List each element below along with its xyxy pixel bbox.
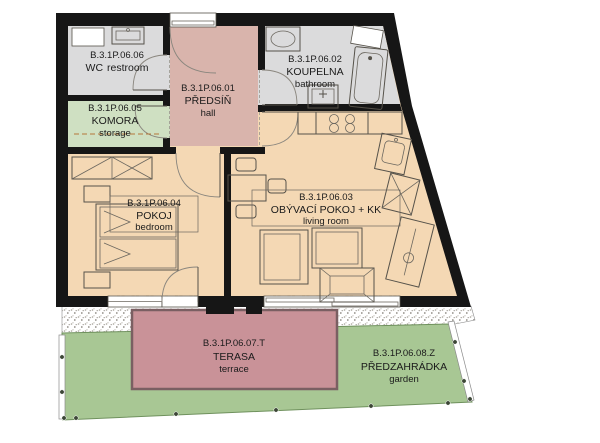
bedroom-label-en: bedroom xyxy=(135,222,173,233)
terrace xyxy=(132,310,337,389)
wc-label-name: WCrestroom xyxy=(86,62,149,74)
garden-label-en: garden xyxy=(389,374,419,385)
terrace-label-en: terrace xyxy=(219,364,249,375)
wc-label-code: B.3.1P.06.06 xyxy=(90,50,144,61)
fence-left xyxy=(59,335,65,419)
living-room-label-name: OBÝVACÍ POKOJ + KK xyxy=(271,203,381,216)
garden-label-code: B.3.1P.06.08.Z xyxy=(373,348,435,359)
hall-label-name: PŘEDSÍŇ xyxy=(185,94,232,107)
terrace-area xyxy=(132,310,337,389)
hall-label-code: B.3.1P.06.01 xyxy=(181,83,235,94)
wc-shaft-niche xyxy=(72,28,104,46)
terrace-label-code: B.3.1P.06.07.T xyxy=(203,338,265,349)
bathroom-label-code: B.3.1P.06.02 xyxy=(288,54,342,65)
living-room-label-en: living room xyxy=(303,216,349,227)
living-room-label-code: B.3.1P.06.03 xyxy=(299,192,353,203)
terrace-pier xyxy=(246,307,262,314)
bedroom-label-code: B.3.1P.06.04 xyxy=(127,198,181,209)
storage-label-name: KOMORA xyxy=(92,115,139,127)
terrace-pier xyxy=(206,307,234,314)
floor-plan: B.3.1P.06.06 WCrestroom B.3.1P.06.05 KOM… xyxy=(0,0,600,443)
bathroom-label-name: KOUPELNA xyxy=(286,66,343,78)
hall-label-en: hall xyxy=(201,108,216,119)
storage-label-en: storage xyxy=(99,128,131,139)
bedroom-label-name: POKOJ xyxy=(136,210,172,222)
bathroom-label-en: bathroom xyxy=(295,79,335,90)
storage-label-code: B.3.1P.06.05 xyxy=(88,103,142,114)
terrace-label-name: TERASA xyxy=(213,351,255,363)
garden-label-name: PŘEDZAHRÁDKA xyxy=(361,360,447,373)
bedroom-window xyxy=(108,296,162,307)
